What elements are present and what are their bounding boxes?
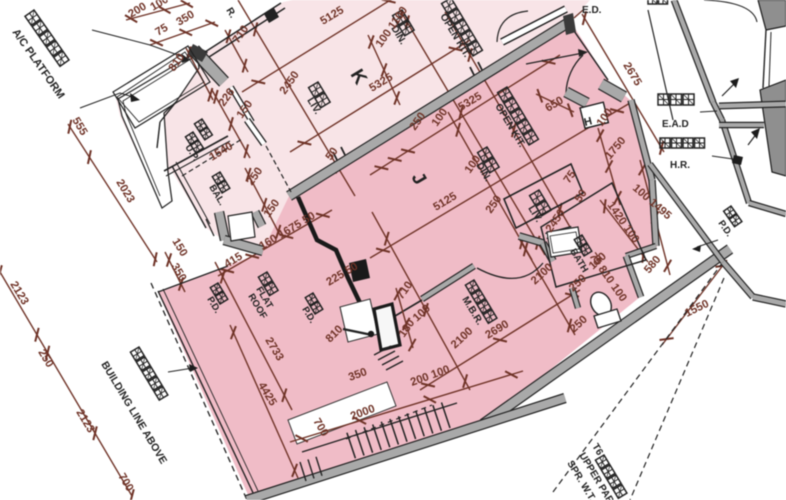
- svg-text:H.R.: H.R.: [670, 160, 690, 171]
- svg-text:E.A.D: E.A.D: [662, 119, 689, 130]
- svg-text:E.D.: E.D.: [582, 5, 602, 16]
